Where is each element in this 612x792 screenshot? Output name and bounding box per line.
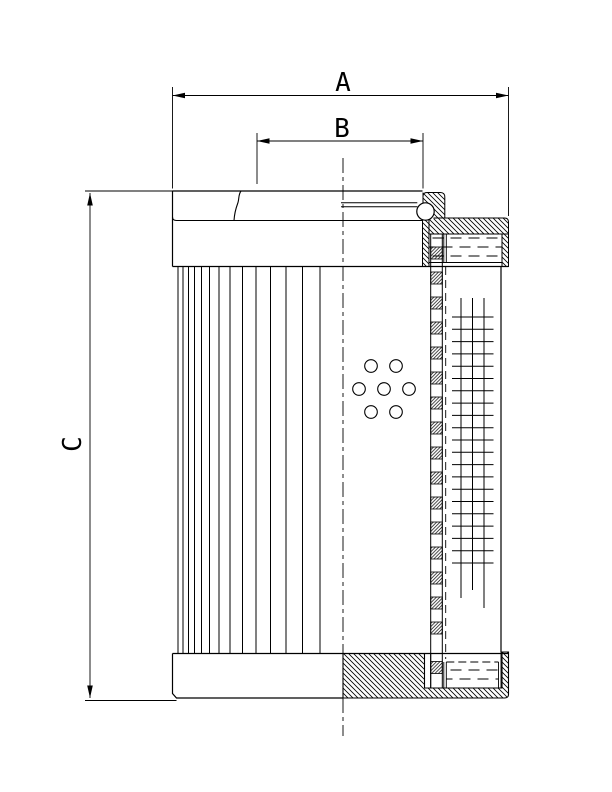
dim-b-arrow-left xyxy=(257,138,270,144)
flange-band xyxy=(429,218,509,234)
cap-shoulder-line xyxy=(173,217,423,221)
filter-element-technical-drawing: A B C xyxy=(0,0,612,792)
o-ring xyxy=(417,203,434,220)
dim-a-label: A xyxy=(335,68,351,98)
flange-left-wall xyxy=(423,218,430,267)
dim-c-label: C xyxy=(58,436,88,452)
mesh-horizontals xyxy=(452,317,494,563)
inner-tube-lines xyxy=(341,203,417,207)
perforation-holes xyxy=(353,360,416,419)
support-mesh xyxy=(452,298,494,608)
pleats xyxy=(178,267,320,654)
mesh-verticals xyxy=(461,298,484,608)
bottom-seal xyxy=(444,652,501,688)
flange-right-wall xyxy=(502,234,509,267)
drawing-sheet: A B C xyxy=(0,0,612,792)
dimension-b: B xyxy=(257,114,423,189)
dim-a-arrow-left xyxy=(173,93,186,99)
center-tube xyxy=(431,235,443,689)
dim-c-arrow-bottom xyxy=(87,686,93,699)
dim-b-label: B xyxy=(334,114,350,144)
dim-c-arrow-top xyxy=(87,193,93,206)
dim-b-arrow-right xyxy=(411,138,424,144)
dim-a-arrow-right xyxy=(496,93,509,99)
tube-perforation-squares xyxy=(431,247,443,674)
cap-step-curve xyxy=(234,191,241,221)
dimension-c: C xyxy=(58,191,177,701)
